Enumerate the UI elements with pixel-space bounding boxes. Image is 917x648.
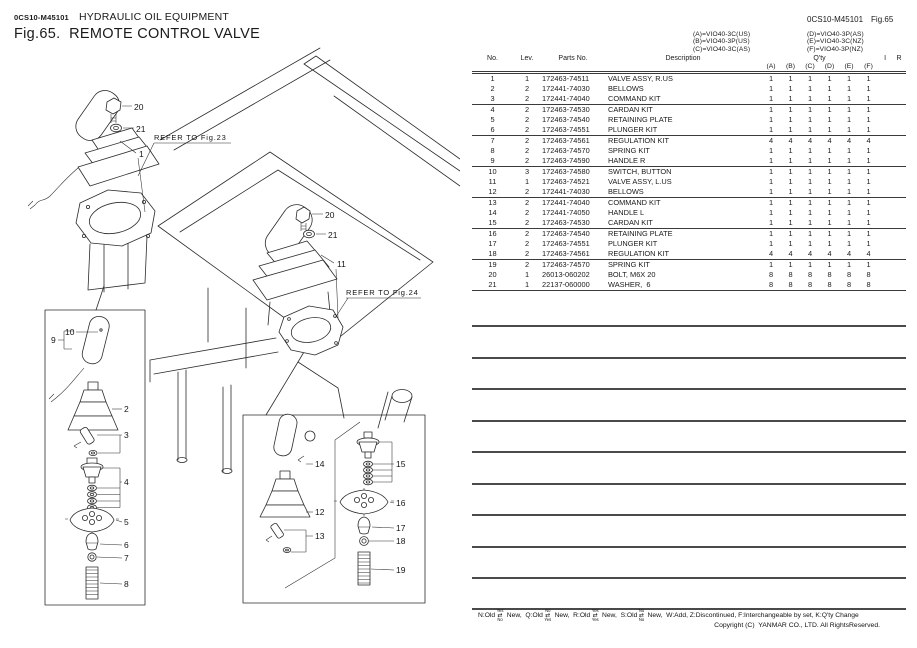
parts-table: No. Lev. Parts No. Description Q'ty I R … [472, 54, 906, 291]
cell-qty-e: 1 [839, 218, 859, 229]
cell-parts-no: 172463-74511 [541, 73, 605, 85]
cell-description: PLUNGER KIT [605, 125, 761, 136]
callout-label: 5 [124, 517, 129, 527]
cell-lev: 3 [513, 167, 541, 178]
cell-qty-c: 1 [800, 115, 820, 125]
cell-r [892, 84, 906, 94]
cell-no: 11 [472, 177, 513, 187]
cell-parts-no: 172463-74570 [541, 146, 605, 156]
washer-part [304, 230, 315, 238]
cell-qty-f: 1 [859, 218, 878, 229]
old-new-arrows-icon: Yes⇄No [497, 609, 504, 622]
legend-code-s: S:Old No⇄No New, [621, 609, 667, 622]
cell-no: 10 [472, 167, 513, 178]
cell-qty-b: 1 [781, 187, 800, 198]
cell-description: SPRING KIT [605, 260, 761, 271]
joystick-left-assembly: 20 21 11 REFER TO Fig.24 [253, 199, 421, 355]
cell-qty-c: 1 [800, 239, 820, 249]
callout-label: 14 [315, 459, 325, 469]
empty-row-line [472, 577, 906, 579]
cell-qty-e: 4 [839, 249, 859, 260]
cell-qty-d: 8 [820, 280, 839, 291]
cell-r [892, 260, 906, 271]
joystick-right-assembly: 20 21 1 REFER TO Fig.23 [28, 85, 231, 246]
cell-description: HANDLE L [605, 208, 761, 218]
old-new-arrows-icon: No⇄No [639, 609, 644, 622]
cell-qty-c: 1 [800, 94, 820, 105]
col-header-qty-f: (F) [859, 63, 878, 73]
cell-description: CARDAN KIT [605, 105, 761, 116]
cell-description: SPRING KIT [605, 146, 761, 156]
cell-i [878, 167, 892, 178]
callout-label: 20 [325, 210, 335, 220]
callout-label: 12 [315, 507, 325, 517]
cell-description: VALVE ASSY, L.US [605, 177, 761, 187]
cell-qty-f: 8 [859, 280, 878, 291]
cell-qty-b: 1 [781, 146, 800, 156]
callout-label: 6 [124, 540, 129, 550]
cell-r [892, 105, 906, 116]
cell-qty-e: 1 [839, 239, 859, 249]
cell-no: 17 [472, 239, 513, 249]
cell-lev: 2 [513, 115, 541, 125]
table-row: 6 2 172463-74551 PLUNGER KIT 1 1 1 1 1 1 [472, 125, 906, 136]
cell-qty-f: 1 [859, 187, 878, 198]
col-header-qty-e: (E) [839, 63, 859, 73]
cell-qty-f: 8 [859, 270, 878, 280]
cell-no: 14 [472, 208, 513, 218]
cell-qty-f: 1 [859, 208, 878, 218]
callout-label: 9 [51, 335, 56, 345]
cell-qty-c: 1 [800, 218, 820, 229]
cell-qty-c: 1 [800, 187, 820, 198]
cell-no: 8 [472, 146, 513, 156]
cell-i [878, 105, 892, 116]
cell-qty-a: 1 [761, 73, 781, 85]
cell-lev: 2 [513, 249, 541, 260]
cell-parts-no: 172463-74580 [541, 167, 605, 178]
table-row: 18 2 172463-74561 REGULATION KIT 4 4 4 4… [472, 249, 906, 260]
cell-qty-e: 1 [839, 84, 859, 94]
table-row: 9 2 172463-74590 HANDLE R 1 1 1 1 1 1 [472, 156, 906, 167]
cell-no: 20 [472, 270, 513, 280]
old-new-arrows-icon: Yes⇄Yes [592, 609, 599, 622]
cell-qty-d: 1 [820, 218, 839, 229]
cell-qty-f: 1 [859, 156, 878, 167]
cell-qty-e: 1 [839, 73, 859, 85]
refer-fig23-label: REFER TO Fig.23 [154, 133, 227, 142]
cell-qty-d: 1 [820, 94, 839, 105]
cell-qty-c: 8 [800, 270, 820, 280]
cell-qty-f: 1 [859, 239, 878, 249]
exploded-view-left: 10 9 2 3 4 5 6 7 [45, 310, 145, 605]
table-row: 19 2 172463-74570 SPRING KIT 1 1 1 1 1 1 [472, 260, 906, 271]
cell-description: COMMAND KIT [605, 198, 761, 209]
cell-no: 9 [472, 156, 513, 167]
old-new-arrows-icon: No⇄Yes [544, 609, 551, 622]
cell-qty-e: 8 [839, 270, 859, 280]
table-row: 13 2 172441-74040 COMMAND KIT 1 1 1 1 1 … [472, 198, 906, 209]
cell-i [878, 218, 892, 229]
cell-qty-a: 1 [761, 177, 781, 187]
cell-qty-a: 1 [761, 105, 781, 116]
doc-code-right: 0CS10-M45101 [807, 15, 863, 24]
callout-label: 15 [396, 459, 406, 469]
table-row: 12 2 172441-74030 BELLOWS 1 1 1 1 1 1 [472, 187, 906, 198]
cell-qty-b: 1 [781, 115, 800, 125]
cell-qty-a: 1 [761, 156, 781, 167]
cell-qty-d: 1 [820, 73, 839, 85]
cell-description: BOLT, M6X 20 [605, 270, 761, 280]
cell-qty-d: 1 [820, 167, 839, 178]
callout-label: 21 [328, 230, 338, 240]
cell-description: COMMAND KIT [605, 94, 761, 105]
cell-r [892, 125, 906, 136]
cell-no: 13 [472, 198, 513, 209]
cell-qty-b: 1 [781, 125, 800, 136]
cell-qty-e: 1 [839, 146, 859, 156]
cell-no: 7 [472, 136, 513, 147]
cell-description: RETAINING PLATE [605, 115, 761, 125]
cell-qty-d: 1 [820, 84, 839, 94]
cell-i [878, 280, 892, 291]
col-header-description: Description [605, 54, 761, 73]
cell-no: 21 [472, 280, 513, 291]
cell-qty-a: 1 [761, 167, 781, 178]
cell-qty-e: 1 [839, 94, 859, 105]
col-header-parts-no: Parts No. [541, 54, 605, 73]
cell-qty-f: 1 [859, 84, 878, 94]
cell-r [892, 280, 906, 291]
cell-r [892, 177, 906, 187]
cell-qty-e: 1 [839, 198, 859, 209]
cell-i [878, 73, 892, 85]
cell-qty-c: 1 [800, 177, 820, 187]
cell-qty-c: 1 [800, 125, 820, 136]
cell-parts-no: 172441-74030 [541, 84, 605, 94]
table-row: 2 2 172441-74030 BELLOWS 1 1 1 1 1 1 [472, 84, 906, 94]
cell-r [892, 94, 906, 105]
cell-qty-b: 1 [781, 105, 800, 116]
col-header-qty-d: (D) [820, 63, 839, 73]
cell-parts-no: 172463-74590 [541, 156, 605, 167]
cell-no: 4 [472, 105, 513, 116]
cell-qty-e: 1 [839, 156, 859, 167]
fig-number-right: Fig.65 [871, 15, 893, 24]
cell-lev: 2 [513, 260, 541, 271]
cell-qty-d: 8 [820, 270, 839, 280]
header-right: 0CS10-M45101 Fig.65 [807, 15, 893, 24]
cell-qty-c: 1 [800, 208, 820, 218]
cell-qty-a: 1 [761, 125, 781, 136]
cell-qty-b: 1 [781, 73, 800, 85]
callout-label: 21 [136, 124, 146, 134]
cell-i [878, 229, 892, 240]
cell-r [892, 198, 906, 209]
cell-r [892, 208, 906, 218]
col-header-lev: Lev. [513, 54, 541, 73]
table-row: 21 1 22137-060000 WASHER, 6 8 8 8 8 8 8 [472, 280, 906, 291]
model-code: (B)=VIO40-3P(US) [693, 38, 750, 45]
cell-r [892, 239, 906, 249]
cell-qty-a: 1 [761, 229, 781, 240]
cell-qty-a: 1 [761, 115, 781, 125]
cell-qty-c: 1 [800, 167, 820, 178]
legend-code-q: Q:Old No⇄Yes New, [525, 609, 573, 622]
table-row: 7 2 172463-74561 REGULATION KIT 4 4 4 4 … [472, 136, 906, 147]
doc-code: 0CS10-M45101 [14, 13, 69, 22]
cell-r [892, 218, 906, 229]
callout-label: 10 [65, 327, 75, 337]
cell-lev: 1 [513, 73, 541, 85]
cell-i [878, 84, 892, 94]
cell-qty-d: 1 [820, 115, 839, 125]
cell-qty-e: 1 [839, 229, 859, 240]
cell-r [892, 156, 906, 167]
cell-lev: 2 [513, 187, 541, 198]
cell-r [892, 136, 906, 147]
cell-qty-b: 8 [781, 270, 800, 280]
cell-parts-no: 172463-74530 [541, 218, 605, 229]
cell-parts-no: 172463-74540 [541, 229, 605, 240]
table-row: 5 2 172463-74540 RETAINING PLATE 1 1 1 1… [472, 115, 906, 125]
cell-qty-c: 1 [800, 105, 820, 116]
cell-qty-a: 1 [761, 94, 781, 105]
cell-lev: 1 [513, 280, 541, 291]
empty-row-line [472, 325, 906, 327]
cell-qty-d: 1 [820, 187, 839, 198]
callout-label: 3 [124, 430, 129, 440]
cell-lev: 2 [513, 125, 541, 136]
cell-no: 19 [472, 260, 513, 271]
cell-qty-d: 1 [820, 156, 839, 167]
col-header-qty-a: (A) [761, 63, 781, 73]
cell-qty-b: 1 [781, 260, 800, 271]
cell-i [878, 156, 892, 167]
cell-no: 1 [472, 73, 513, 85]
model-code: (A)=VIO40-3C(US) [693, 31, 750, 38]
legend-code-n: N:Old Yes⇄No New, [478, 609, 525, 622]
cell-qty-a: 4 [761, 249, 781, 260]
cell-qty-a: 1 [761, 187, 781, 198]
cell-qty-d: 1 [820, 229, 839, 240]
col-header-qty-c: (C) [800, 63, 820, 73]
cell-r [892, 146, 906, 156]
cell-parts-no: 172463-74551 [541, 125, 605, 136]
cell-qty-a: 1 [761, 239, 781, 249]
callout-label: 7 [124, 553, 129, 563]
cell-parts-no: 172463-74521 [541, 177, 605, 187]
cell-lev: 2 [513, 208, 541, 218]
cell-qty-b: 1 [781, 208, 800, 218]
model-code: (D)=VIO40-3P(AS) [807, 31, 864, 38]
table-row: 1 1 172463-74511 VALVE ASSY, R.US 1 1 1 … [472, 73, 906, 85]
cell-lev: 2 [513, 229, 541, 240]
cell-i [878, 208, 892, 218]
cell-qty-f: 1 [859, 198, 878, 209]
cell-qty-a: 1 [761, 84, 781, 94]
cell-qty-f: 1 [859, 94, 878, 105]
cell-description: BELLOWS [605, 187, 761, 198]
callout-label: 13 [315, 531, 325, 541]
cell-lev: 2 [513, 218, 541, 229]
cell-parts-no: 26013-060202 [541, 270, 605, 280]
revision-code-legend: N:Old Yes⇄No New, Q:Old No⇄Yes New, R:Ol… [478, 609, 859, 622]
cell-qty-f: 1 [859, 167, 878, 178]
cell-qty-f: 1 [859, 125, 878, 136]
cell-no: 6 [472, 125, 513, 136]
cell-qty-a: 8 [761, 280, 781, 291]
cell-qty-f: 4 [859, 249, 878, 260]
cell-qty-d: 4 [820, 249, 839, 260]
cell-qty-d: 1 [820, 239, 839, 249]
cell-qty-b: 1 [781, 84, 800, 94]
cell-qty-e: 1 [839, 187, 859, 198]
cell-qty-e: 8 [839, 280, 859, 291]
cell-parts-no: 172441-74040 [541, 198, 605, 209]
empty-row-line [472, 483, 906, 485]
empty-row-line [472, 357, 906, 359]
table-row: 11 1 172463-74521 VALVE ASSY, L.US 1 1 1… [472, 177, 906, 187]
cell-lev: 2 [513, 239, 541, 249]
empty-row-line [472, 514, 906, 516]
cell-i [878, 198, 892, 209]
cell-qty-f: 1 [859, 105, 878, 116]
cell-qty-d: 1 [820, 177, 839, 187]
cell-lev: 2 [513, 146, 541, 156]
washer-part [111, 124, 122, 132]
cell-no: 16 [472, 229, 513, 240]
cell-r [892, 187, 906, 198]
cell-description: VALVE ASSY, R.US [605, 73, 761, 85]
cell-lev: 2 [513, 94, 541, 105]
cell-no: 15 [472, 218, 513, 229]
cell-r [892, 73, 906, 85]
cell-qty-d: 1 [820, 125, 839, 136]
cell-qty-e: 4 [839, 136, 859, 147]
header-left: 0CS10-M45101 HYDRAULIC OIL EQUIPMENT [14, 11, 229, 23]
cell-qty-b: 8 [781, 280, 800, 291]
cell-parts-no: 172463-74561 [541, 136, 605, 147]
cell-qty-e: 1 [839, 167, 859, 178]
callout-label: 1 [139, 149, 144, 159]
cell-qty-f: 1 [859, 177, 878, 187]
cell-r [892, 229, 906, 240]
cell-i [878, 125, 892, 136]
callout-label: 19 [396, 565, 406, 575]
cell-qty-c: 1 [800, 84, 820, 94]
cell-qty-b: 1 [781, 229, 800, 240]
cell-description: CARDAN KIT [605, 218, 761, 229]
callout-label: 8 [124, 579, 129, 589]
cell-parts-no: 172463-74570 [541, 260, 605, 271]
cell-qty-a: 1 [761, 146, 781, 156]
cell-qty-e: 1 [839, 115, 859, 125]
cell-lev: 2 [513, 136, 541, 147]
cell-qty-d: 1 [820, 198, 839, 209]
cell-lev: 2 [513, 105, 541, 116]
cell-description: WASHER, 6 [605, 280, 761, 291]
cell-qty-d: 1 [820, 208, 839, 218]
model-code: (C)=VIO40-3C(AS) [693, 46, 750, 53]
cell-lev: 2 [513, 84, 541, 94]
cell-parts-no: 172463-74561 [541, 249, 605, 260]
table-row: 17 2 172463-74551 PLUNGER KIT 1 1 1 1 1 … [472, 239, 906, 249]
col-header-r: R [892, 54, 906, 73]
cell-description: REGULATION KIT [605, 249, 761, 260]
cell-qty-c: 8 [800, 280, 820, 291]
cell-qty-a: 1 [761, 260, 781, 271]
callout-label: 4 [124, 477, 129, 487]
cell-qty-a: 1 [761, 208, 781, 218]
empty-row-line [472, 420, 906, 422]
callout-label: 2 [124, 404, 129, 414]
cell-description: RETAINING PLATE [605, 229, 761, 240]
cell-i [878, 249, 892, 260]
model-legend-right: (D)=VIO40-3P(AS) (E)=VIO40-3C(NZ) (F)=VI… [807, 31, 864, 53]
cell-qty-c: 4 [800, 136, 820, 147]
cell-r [892, 167, 906, 178]
callout-label: 17 [396, 523, 406, 533]
cell-description: REGULATION KIT [605, 136, 761, 147]
cell-parts-no: 172441-74040 [541, 94, 605, 105]
cell-qty-e: 1 [839, 105, 859, 116]
table-row: 15 2 172463-74530 CARDAN KIT 1 1 1 1 1 1 [472, 218, 906, 229]
table-row: 10 3 172463-74580 SWITCH, BUTTON 1 1 1 1… [472, 167, 906, 178]
callout-label: 11 [337, 259, 346, 269]
cell-qty-b: 4 [781, 249, 800, 260]
cell-i [878, 115, 892, 125]
cell-qty-f: 4 [859, 136, 878, 147]
cell-qty-f: 1 [859, 73, 878, 85]
refer-fig24-label: REFER TO Fig.24 [346, 288, 419, 297]
cell-qty-d: 1 [820, 105, 839, 116]
cell-qty-a: 8 [761, 270, 781, 280]
cell-qty-d: 4 [820, 136, 839, 147]
empty-row-line [472, 388, 906, 390]
cell-qty-b: 1 [781, 218, 800, 229]
cell-qty-a: 1 [761, 198, 781, 209]
empty-row-line [472, 451, 906, 453]
cell-lev: 2 [513, 198, 541, 209]
cell-parts-no: 172463-74540 [541, 115, 605, 125]
empty-row-line [472, 546, 906, 548]
legend-code-r: R:Old Yes⇄Yes New, [573, 609, 620, 622]
table-row: 14 2 172441-74050 HANDLE L 1 1 1 1 1 1 [472, 208, 906, 218]
cell-qty-e: 1 [839, 260, 859, 271]
model-code: (F)=VIO40-3P(NZ) [807, 46, 864, 53]
cell-qty-b: 1 [781, 239, 800, 249]
cell-qty-e: 1 [839, 177, 859, 187]
cell-no: 5 [472, 115, 513, 125]
col-header-no: No. [472, 54, 513, 73]
cell-qty-c: 1 [800, 198, 820, 209]
table-row: 3 2 172441-74040 COMMAND KIT 1 1 1 1 1 1 [472, 94, 906, 105]
cell-lev: 2 [513, 156, 541, 167]
cell-parts-no: 22137-060000 [541, 280, 605, 291]
cell-description: PLUNGER KIT [605, 239, 761, 249]
cell-lev: 1 [513, 270, 541, 280]
cell-qty-c: 1 [800, 156, 820, 167]
cell-qty-d: 1 [820, 260, 839, 271]
cell-qty-f: 1 [859, 146, 878, 156]
cell-i [878, 239, 892, 249]
cell-i [878, 146, 892, 156]
cell-qty-a: 4 [761, 136, 781, 147]
col-header-qty: Q'ty [761, 54, 878, 63]
cell-no: 3 [472, 94, 513, 105]
table-row: 16 2 172463-74540 RETAINING PLATE 1 1 1 … [472, 229, 906, 240]
